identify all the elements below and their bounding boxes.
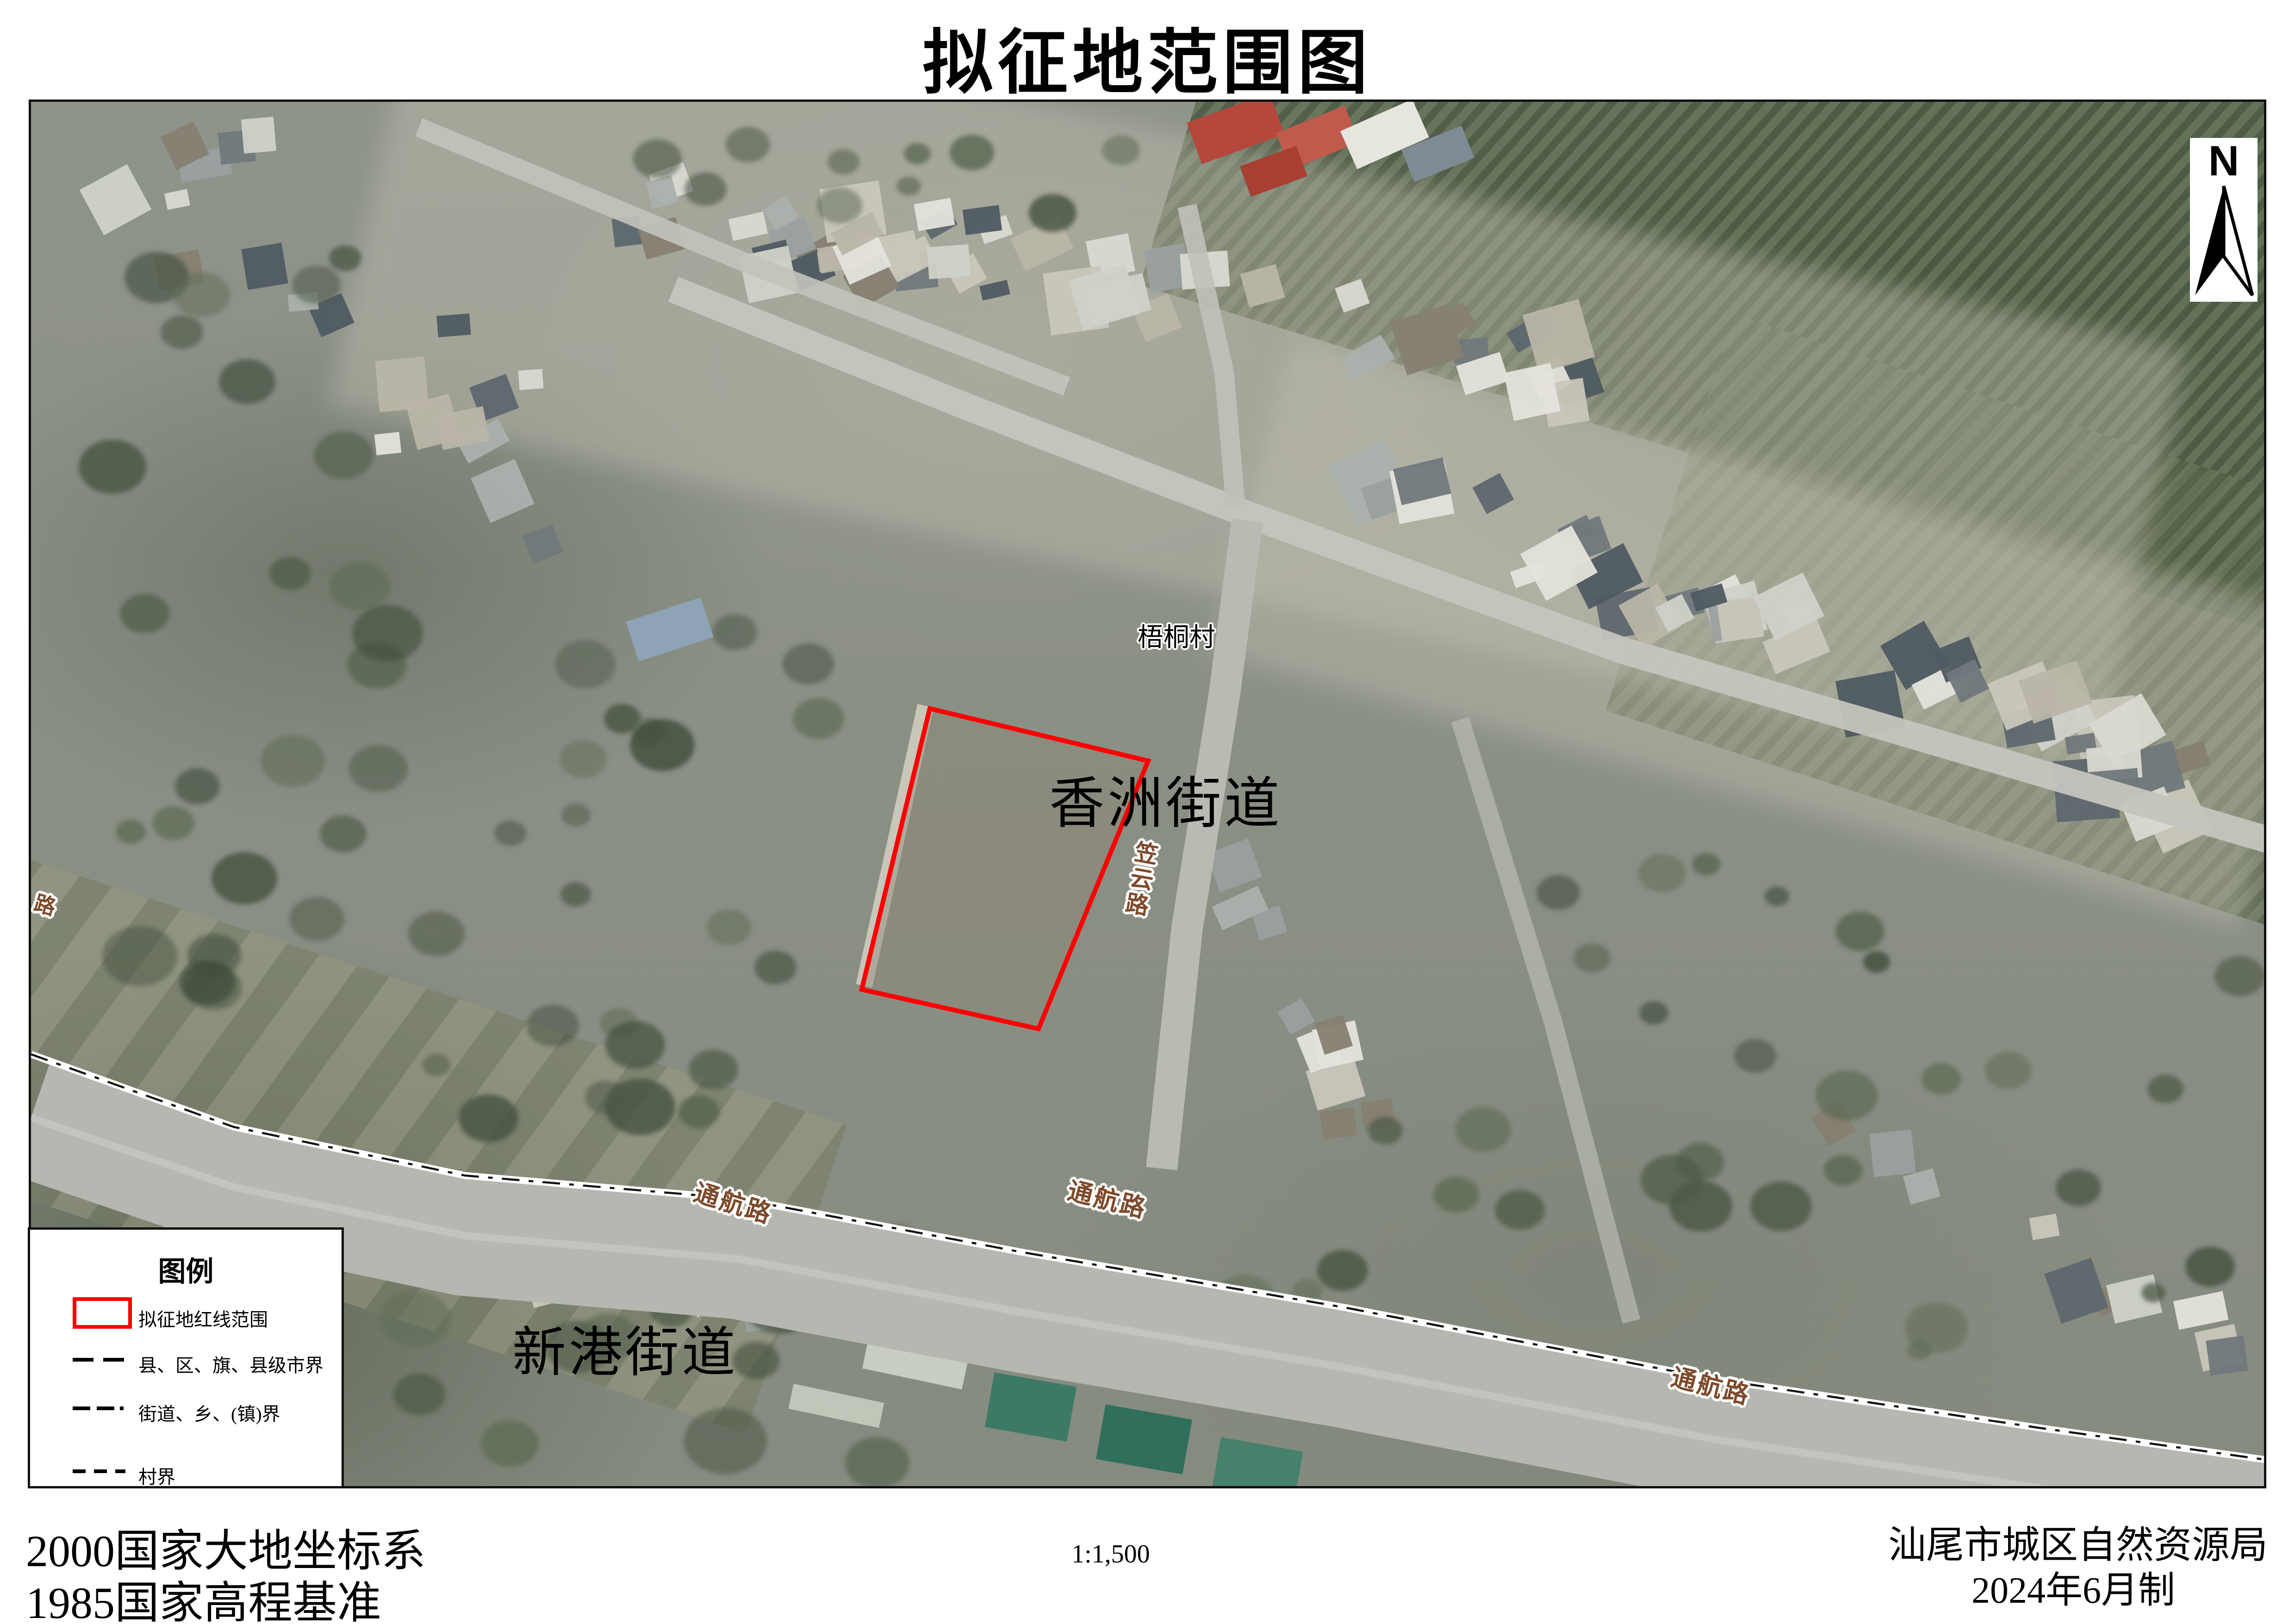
tree-canopy xyxy=(684,1408,767,1474)
tree-canopy xyxy=(904,143,931,164)
tree-canopy xyxy=(1638,854,1686,892)
tree-canopy xyxy=(329,245,361,271)
tree-canopy xyxy=(726,127,770,162)
legend-item-label: 村界 xyxy=(138,1462,175,1489)
tree-canopy xyxy=(120,594,169,633)
tree-canopy xyxy=(1750,1182,1812,1231)
tree-canopy xyxy=(733,1342,780,1379)
page-title: 拟征地范围图 xyxy=(0,6,2295,107)
tree-canopy xyxy=(793,698,844,739)
tree-canopy xyxy=(527,1005,579,1046)
legend-county-boundary-symbol xyxy=(73,1358,125,1362)
legend-item-label: 县、区、旗、县级市界 xyxy=(138,1350,323,1377)
datum-line2: 1985国家高程基准 xyxy=(26,1577,426,1624)
tree-canopy xyxy=(2214,956,2265,996)
building xyxy=(2029,1213,2059,1240)
tree-canopy xyxy=(1317,1250,1368,1291)
tree-canopy xyxy=(187,934,241,977)
tree-canopy xyxy=(707,909,751,945)
tree-canopy xyxy=(2056,1170,2101,1206)
tree-canopy xyxy=(1029,194,1076,232)
tree-canopy xyxy=(1641,1155,1704,1205)
tree-canopy xyxy=(555,640,616,689)
tree-canopy xyxy=(473,1190,521,1229)
tree-canopy xyxy=(1228,1332,1251,1350)
tree-canopy xyxy=(1863,951,1890,973)
datum-note: 2000国家大地坐标系 1985国家高程基准 xyxy=(26,1525,426,1624)
tree-canopy xyxy=(116,820,146,844)
building xyxy=(1659,1407,1710,1456)
tree-canopy xyxy=(1816,1070,1878,1120)
tree-canopy xyxy=(314,431,373,479)
tree-canopy xyxy=(1985,1052,2032,1089)
tree-canopy xyxy=(1368,1117,1403,1145)
tree-canopy xyxy=(2141,1283,2165,1302)
legend-title: 图例 xyxy=(30,1249,342,1289)
map-scale: 1:1,500 xyxy=(995,1539,1226,1569)
building xyxy=(1784,600,1816,625)
tree-canopy xyxy=(879,1224,916,1254)
tree-canopy xyxy=(211,852,277,904)
tree-canopy xyxy=(1433,1176,1479,1213)
building xyxy=(241,117,276,154)
tree-canopy xyxy=(175,768,220,804)
building xyxy=(518,369,544,390)
building xyxy=(611,216,642,248)
tree-canopy xyxy=(352,605,423,661)
satellite-map: 梧桐村 香洲街道 新港街道 笠云路 通航路 通航路 通航路 路 N xyxy=(29,100,2266,1488)
tree-canopy xyxy=(102,926,177,986)
tree-canopy xyxy=(152,806,194,840)
legend: 图例 拟征地红线范围 县、区、旗、县级市界 街道、乡、(镇)界 村界 xyxy=(28,1227,344,1488)
street-label-xingang: 新港街道 xyxy=(512,1309,738,1387)
tree-canopy xyxy=(481,1420,539,1467)
tree-canopy xyxy=(219,359,275,404)
legend-village-boundary-symbol xyxy=(73,1469,125,1473)
building xyxy=(374,432,402,455)
tree-canopy xyxy=(173,272,230,317)
tree-canopy xyxy=(560,882,591,907)
agency-note: 汕尾市城区自然资源局 2024年6月制 xyxy=(1879,1523,2268,1613)
tree-canopy xyxy=(1905,1302,1968,1353)
tree-canopy xyxy=(292,266,341,304)
tree-canopy xyxy=(1574,943,1611,973)
tree-canopy xyxy=(408,911,465,956)
building xyxy=(2206,1336,2248,1375)
tree-canopy xyxy=(783,643,834,684)
tree-canopy xyxy=(689,1050,738,1089)
land-acquisition-map-page: 拟征地范围图 xyxy=(0,0,2295,1624)
tree-canopy xyxy=(1102,135,1140,165)
building xyxy=(927,244,971,280)
legend-town-boundary-symbol xyxy=(73,1406,127,1410)
north-arrow-label: N xyxy=(2190,138,2258,184)
tree-canopy xyxy=(1495,1190,1545,1230)
tree-canopy xyxy=(1824,1155,1862,1186)
datum-line1: 2000国家大地坐标系 xyxy=(26,1525,426,1577)
tree-canopy xyxy=(817,187,862,224)
tree-canopy xyxy=(854,1277,937,1343)
tree-canopy xyxy=(261,735,325,787)
legend-item-label: 街道、乡、(镇)界 xyxy=(138,1399,280,1426)
tree-canopy xyxy=(712,614,757,650)
tree-canopy xyxy=(754,951,796,984)
tree-canopy xyxy=(827,149,859,174)
tree-canopy xyxy=(1765,886,1789,906)
building xyxy=(2088,768,2140,800)
tree-canopy xyxy=(161,315,203,349)
tree-canopy xyxy=(423,1054,450,1076)
building xyxy=(241,243,288,290)
tree-canopy xyxy=(896,176,921,196)
building xyxy=(1504,363,1561,421)
tree-canopy xyxy=(289,897,344,941)
tree-canopy xyxy=(630,719,695,771)
tree-canopy xyxy=(743,1275,817,1334)
tree-canopy xyxy=(393,1374,446,1415)
tree-canopy xyxy=(1922,1063,1961,1095)
tree-canopy xyxy=(1639,1001,1668,1025)
tree-canopy xyxy=(950,135,994,170)
building xyxy=(1180,250,1230,290)
tree-canopy xyxy=(1213,1275,1276,1325)
tree-canopy xyxy=(388,1244,425,1275)
tree-canopy xyxy=(330,562,390,611)
tree-canopy xyxy=(79,440,146,494)
tree-canopy xyxy=(1734,1039,1776,1073)
tree-canopy xyxy=(2185,1247,2235,1287)
tree-canopy xyxy=(678,1095,720,1128)
tree-canopy xyxy=(560,740,607,778)
tree-canopy xyxy=(320,815,367,852)
compile-date: 2024年6月制 xyxy=(1879,1568,2268,1613)
tree-canopy xyxy=(1293,1279,1323,1303)
north-arrow: N xyxy=(2190,138,2258,302)
tree-canopy xyxy=(585,1081,627,1114)
building xyxy=(1869,1129,1916,1177)
tree-canopy xyxy=(845,1437,909,1488)
tree-canopy xyxy=(605,1021,665,1069)
north-arrow-icon xyxy=(2191,184,2256,297)
tree-canopy xyxy=(349,745,408,792)
building xyxy=(1835,670,1905,738)
building xyxy=(1320,1108,1357,1139)
street-label-xiangzhou: 香洲街道 xyxy=(1049,758,1282,839)
building xyxy=(963,205,1002,235)
tree-canopy xyxy=(1455,1107,1511,1152)
tree-canopy xyxy=(380,1291,451,1347)
building xyxy=(436,313,471,337)
legend-item-label: 拟征地红线范围 xyxy=(138,1305,268,1332)
tree-canopy xyxy=(633,139,682,178)
tree-canopy xyxy=(1835,912,1885,951)
tree-canopy xyxy=(269,557,311,590)
tree-canopy xyxy=(344,1230,395,1270)
tree-canopy xyxy=(561,803,591,827)
legend-redline-symbol xyxy=(73,1297,132,1329)
tree-canopy xyxy=(1536,875,1580,910)
tree-canopy xyxy=(494,821,526,846)
tree-canopy xyxy=(459,1095,518,1142)
tree-canopy xyxy=(1692,853,1720,876)
tree-canopy xyxy=(2147,1075,2183,1103)
tree-canopy xyxy=(684,172,727,206)
agency-name: 汕尾市城区自然资源局 xyxy=(1879,1523,2268,1568)
village-label: 梧桐村 xyxy=(1121,616,1232,654)
